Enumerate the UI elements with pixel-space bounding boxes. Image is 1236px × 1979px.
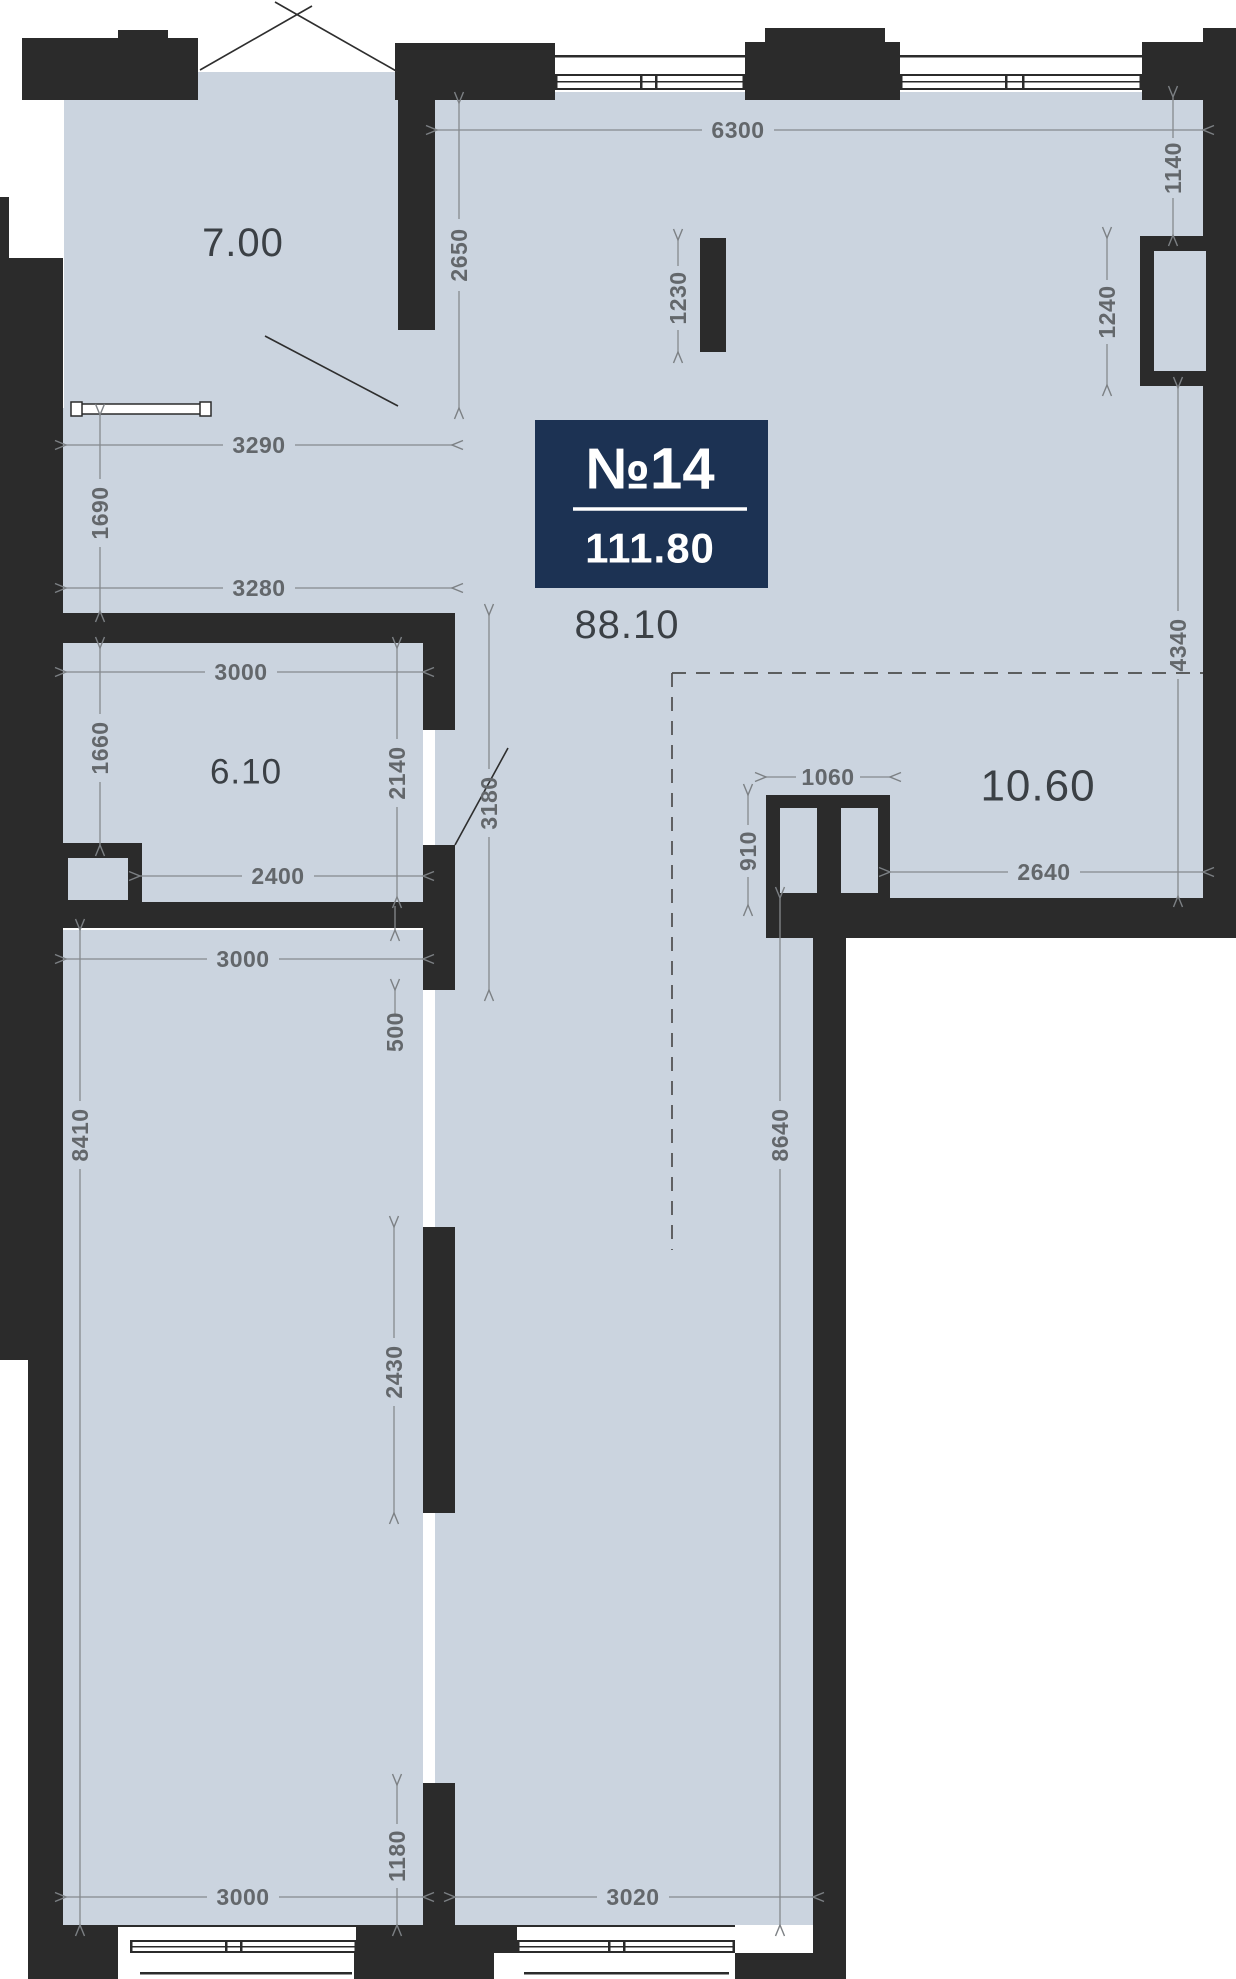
dim-label-1140: 1140 [1160,142,1186,194]
dim-label-8410: 8410 [67,1108,93,1161]
wall-top-left-block [22,38,198,100]
wall-bottom-left-pier [28,1925,118,1979]
dim-label-3020: 3020 [606,1884,659,1910]
duct-opening-1 [780,808,817,893]
unit-badge: №14 111.80 [535,420,768,588]
dim-label-2430: 2430 [381,1345,407,1398]
wall-t-1180 [423,1783,455,1925]
dim-label-1060: 1060 [801,764,854,790]
floor-room-bottom-left [63,930,423,1925]
dim-label-3000-bl: 3000 [216,946,269,972]
floor-hall [63,408,398,613]
dim-label-500: 500 [382,1012,408,1052]
wall-top-pier-2-bump [765,28,885,43]
dim-label-2640: 2640 [1017,859,1070,885]
wall-left-lower [28,1360,63,1925]
dim-label-2650: 2650 [446,228,472,281]
wall-v2-upper [423,643,455,730]
wall-partition-2430 [423,1227,455,1513]
glazed-partition-room-7 [71,402,211,416]
floorplan-drawing: 6300265012301140124043403290169032803000… [0,0,1236,1979]
dim-label-1690: 1690 [87,486,113,539]
niche-room-6 [68,858,128,900]
wall-right-lower [813,935,846,1979]
dim-label-1660: 1660 [87,721,113,774]
floor-areas [63,72,1203,1925]
wall-bottom-center-pier-outer [354,1953,494,1979]
dim-label-3180: 3180 [476,776,502,829]
wall-h2 [140,902,455,928]
label-room-7-00: 7.00 [202,221,284,265]
wall-left-upper [0,258,63,1360]
dim-label-6300: 6300 [711,117,764,143]
dim-label-8640: 8640 [767,1108,793,1161]
wall-top-pier-2 [745,42,900,100]
dim-label-2400: 2400 [251,863,304,889]
wall-top-pier-1 [395,43,555,100]
wall-top-left-bump [118,30,168,39]
dim-label-3290: 3290 [232,432,285,458]
dim-label-910: 910 [735,831,761,871]
dim-label-3000-mid: 3000 [214,659,267,685]
dim-label-3000-bottom: 3000 [216,1884,269,1910]
floor-corridor [435,92,813,1925]
window-top-1 [555,55,745,90]
wall-top-pier-3 [1142,42,1203,100]
floorplan-page: 6300265012301140124043403290169032803000… [0,0,1236,1979]
dim-label-1230: 1230 [665,271,691,324]
dim-label-3280: 3280 [232,575,285,601]
duct-opening-2 [841,808,878,893]
label-area-10-60: 10.60 [980,762,1095,811]
wall-bottom-center-pier [356,1925,517,1953]
window-top-2 [900,55,1142,90]
wall-right [1203,38,1236,938]
unit-area: 111.80 [585,525,715,572]
window-bottom-left [118,1925,357,1975]
label-area-88-10: 88.10 [574,603,679,647]
niche-right-wall [1154,251,1206,371]
label-room-6-10: 6.10 [210,753,282,792]
door-swing-entry-2 [200,6,312,70]
wall-stub-1230 [700,238,726,352]
wall-h1 [63,613,455,643]
unit-number: №14 [585,437,714,502]
dim-label-1180: 1180 [384,1830,410,1882]
door-swing-entry-1 [275,2,398,72]
dim-label-2140: 2140 [384,746,410,799]
dim-label-1240: 1240 [1094,285,1120,338]
window-bottom-right [517,1925,735,1975]
wall-v1-room7 [398,100,435,330]
wall-left-sliver [0,197,9,258]
dim-label-4340: 4340 [1165,618,1191,671]
